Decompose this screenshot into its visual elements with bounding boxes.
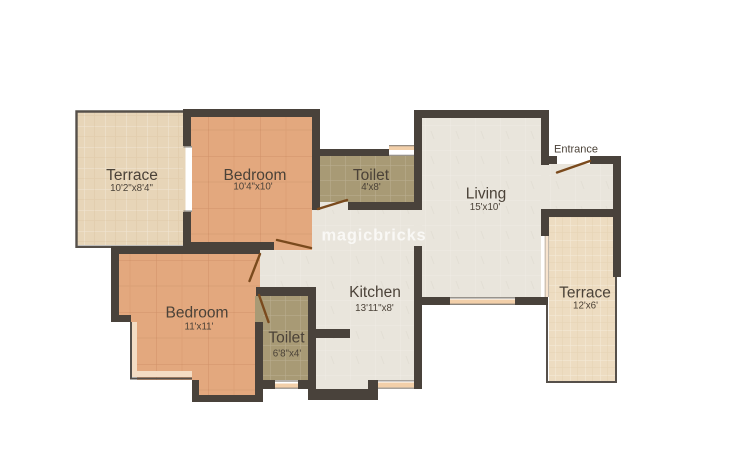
svg-text:Kitchen: Kitchen (349, 284, 401, 301)
svg-text:11'x11': 11'x11' (185, 322, 214, 333)
svg-text:Terrace: Terrace (559, 285, 611, 302)
svg-text:13'11"x8': 13'11"x8' (355, 303, 394, 314)
svg-text:Toilet: Toilet (268, 330, 305, 347)
svg-text:Living: Living (466, 186, 507, 203)
svg-text:Terrace: Terrace (106, 167, 158, 184)
svg-text:10'2"x8'4": 10'2"x8'4" (110, 183, 153, 194)
svg-text:Entrance: Entrance (554, 144, 598, 156)
svg-text:6'8"x4': 6'8"x4' (273, 349, 302, 360)
svg-text:12'x6': 12'x6' (573, 301, 598, 312)
svg-text:15'x10': 15'x10' (470, 202, 501, 213)
svg-text:4'x8': 4'x8' (361, 182, 381, 193)
svg-text:10'4"x10': 10'4"x10' (233, 182, 272, 193)
svg-text:magicbricks: magicbricks (321, 227, 426, 245)
svg-text:Bedroom: Bedroom (166, 305, 229, 322)
